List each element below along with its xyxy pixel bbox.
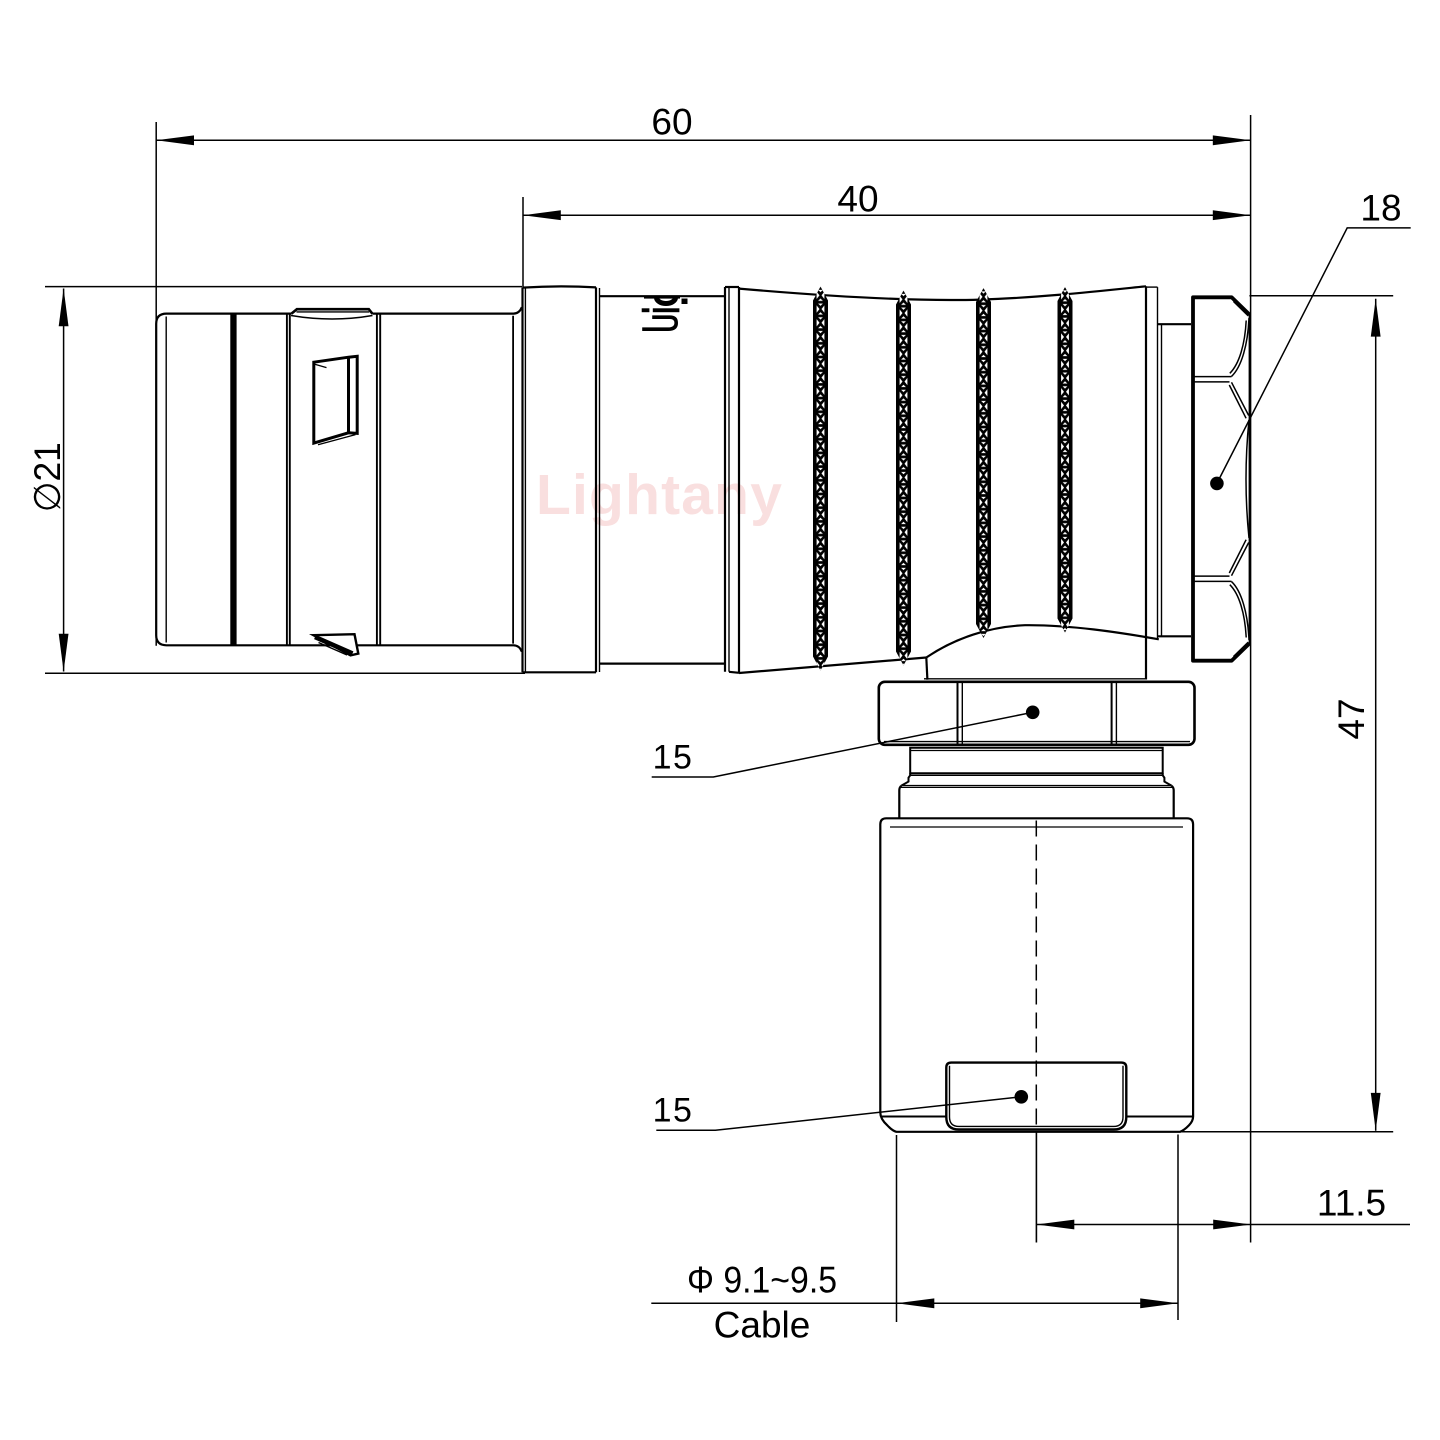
svg-text:∅21: ∅21 [27,442,68,512]
svg-text:18: 18 [1360,188,1401,229]
svg-text:15: 15 [653,1091,694,1129]
svg-text:40: 40 [837,179,878,220]
svg-text:Φ 9.1~9.5: Φ 9.1~9.5 [687,1260,837,1301]
svg-text:Lightany: Lightany [536,463,783,527]
svg-text:60: 60 [651,102,692,143]
svg-text:11.5: 11.5 [1317,1183,1386,1224]
svg-text:Cable: Cable [714,1305,811,1346]
svg-text:47: 47 [1331,698,1372,739]
svg-text:15: 15 [653,739,694,777]
